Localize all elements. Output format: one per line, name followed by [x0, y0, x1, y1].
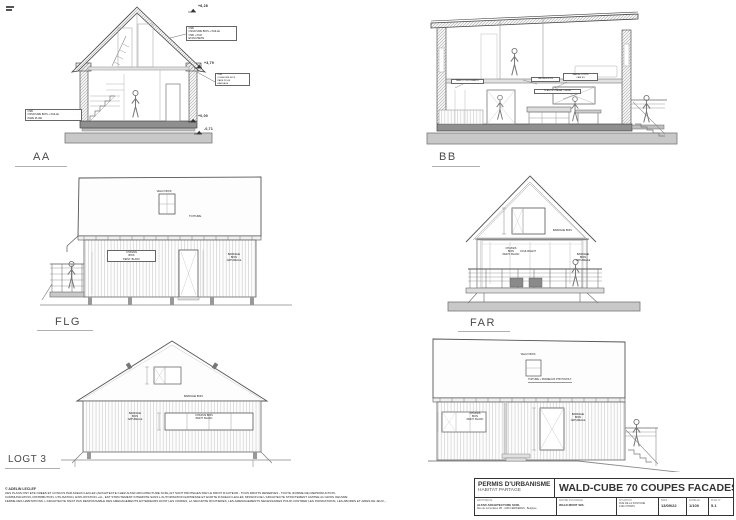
gable-window [154, 367, 181, 384]
titleblock-architect-cell: ARCHITECTE ALTAR ARCHITECTURE SCRL Rue d… [475, 498, 557, 515]
rear-chassis-label: CHASSIS BOIS PEINT. BLANC [461, 412, 489, 421]
cell-header: MAITRE D'OUVRAGE [559, 499, 614, 502]
gable-window [512, 208, 545, 234]
annotation-line: NATURELLE [119, 418, 151, 421]
bb-annotation: GARDE-CORPS CABLES [563, 73, 598, 81]
titleblock-date-cell: DATE 13/09/22 [659, 498, 687, 515]
terrace-deck [466, 288, 604, 293]
annotation-line: BARDAGE [218, 83, 248, 86]
aa-roof-annotation: OSB OSSATURE BOIS + PAILLE OSB + PUR ETA… [186, 26, 237, 41]
permit-cell: PERMIS D'URBANISME HABITAT PARTAGE [475, 479, 555, 497]
bb-annotation: MEUBLE BOIS [531, 77, 560, 82]
floor-slab [80, 121, 197, 128]
cell-value: 13/09/22 [661, 503, 684, 508]
copyright: © ADELIN LECLEF [5, 487, 469, 491]
cell-header: ARCHITECTE [477, 499, 554, 502]
annotation-line: PEINT. BLANC [186, 417, 222, 420]
corner-mark [6, 6, 14, 12]
permit-type: PERMIS D'URBANISME [478, 481, 551, 488]
right-wall [189, 70, 197, 121]
level-eave: +3,79 [204, 61, 214, 65]
cell-value: 1/100 [689, 503, 706, 508]
exterior-stair [628, 450, 652, 462]
drawing-sheet: +6,28 +3,79 +0,00 -0,71 OSB OSSATURE BOI… [0, 0, 736, 520]
elevation-rear-drawing [428, 332, 686, 472]
titleblock-plan-number-cell: PLAN N° 5.1 [709, 498, 733, 515]
cell-value: Rue de la Fontaine 2B - 4190 FERRIERES -… [477, 507, 554, 510]
elevation-logt3-drawing [57, 337, 295, 467]
cell-value: 4190 XHORIS [619, 505, 656, 508]
left-wall [437, 26, 446, 124]
loft-floor [88, 67, 189, 70]
ground-line [428, 461, 686, 472]
annotation-line: PARE PLUIE [28, 117, 80, 120]
cell-header: PLAN N° [711, 499, 731, 502]
logt3-bardage-label: BARDAGE BOIS NATURELLE [119, 412, 151, 421]
caption-flg-underline [37, 330, 93, 331]
ground-slab [65, 133, 212, 143]
cell-header: ECHELLE [689, 499, 706, 502]
annotation-line: NATURELLE [568, 259, 598, 262]
kitchen-counter [527, 107, 571, 112]
level-floor: +0,00 [198, 114, 208, 118]
cell-header: DATE [661, 499, 684, 502]
ground-slab [427, 133, 677, 144]
far-bardage-label: BARDAGE BOIS NATURELLE [568, 253, 598, 262]
elevation-flg-drawing [40, 172, 292, 318]
titleblock-scale-cell: ECHELLE 1/100 [687, 498, 709, 515]
table [575, 110, 601, 113]
titleblock-client-cell: MAITRE D'OUVRAGE WALD MONT SRL [557, 498, 617, 515]
titleblock-situation-cell: SITUATION RUE DE LA FONTAINE 4190 XHORIS [617, 498, 659, 515]
terrace-chair [529, 278, 542, 287]
caption-aa: AA [33, 151, 51, 163]
rear-bardage-label: BARDAGE BOIS NATURELLE [563, 413, 593, 422]
level-ridge: +6,28 [198, 4, 208, 8]
far-coulissant-label: COULISSANT [520, 250, 536, 253]
far-bardage-bois-label: BARDAGE BOIS [553, 229, 572, 232]
annotation-line: ETANCHEITE [189, 37, 235, 40]
caption-aa-underline [15, 166, 67, 167]
project-name: HABITAT PARTAGE [478, 488, 551, 493]
caption-bb-underline [432, 166, 480, 167]
rear-roof-label: TOITURE + PANNEAUX PHOTOVOLT. [528, 378, 572, 383]
elevation-far-drawing [432, 172, 658, 318]
caption-flg: FLG [55, 316, 81, 328]
annotation-line: NATURELLE [563, 419, 593, 422]
annotation-line: PEINT. BLANC [110, 258, 154, 261]
annotation-line: NATURELLE [219, 259, 249, 262]
legal-line: FERME DES HABITATIONS. L'ARCHITECTE N'ES… [5, 500, 469, 504]
siding-wall [84, 240, 256, 297]
person-figure [633, 419, 640, 446]
flg-velux-label: VELUX BOIS [151, 190, 177, 193]
rear-velux-label: VELUX BOIS [514, 353, 542, 356]
legal-block: © ADELIN LECLEF CES PLANS ONT ETE CREES … [5, 487, 469, 504]
bb-annotation: PLAN DE TRAVAIL CHENE [534, 89, 581, 94]
flg-bardage-label: BARDAGE BOIS NATURELLE [219, 253, 249, 262]
sheet-title: WALD-CUBE 70 COUPES FACADES [555, 479, 733, 497]
title-block: PERMIS D'URBANISME HABITAT PARTAGE WALD-… [474, 478, 734, 516]
cell-value: 5.1 [711, 503, 731, 508]
annotation-line: PEINT. BLANC [461, 418, 489, 421]
terrace-chair [510, 278, 523, 287]
flg-roof-label: TOITURE [189, 215, 201, 218]
bb-annotation: PAROI COULISSANTE [451, 79, 484, 84]
logt3-chassis-label: CHASSIS BOIS PEINT. BLANC [186, 414, 222, 420]
roof-section [431, 14, 638, 28]
caption-logt3: LOGT 3 [8, 454, 46, 465]
flg-chassis-label: CHASSIS BOIS PEINT. BLANC [107, 250, 156, 262]
person-figure [132, 90, 139, 117]
floor-slab [437, 124, 632, 131]
caption-logt3-underline [5, 468, 60, 469]
caption-far: FAR [470, 317, 496, 329]
logt3-bardage-bois-label: BARDAGE BOIS [184, 395, 203, 398]
person-figure [68, 261, 75, 288]
aa-wall-left-annotation: OSB OSSATURE BOIS + PAILLE PARE PLUIE [25, 109, 82, 121]
cell-value: WALD MONT SRL [559, 503, 614, 507]
annotation-line: PEINT. BLANC [496, 253, 526, 256]
interior-door [166, 84, 180, 121]
entry-steps [502, 454, 530, 458]
level-ground: -0,71 [204, 127, 213, 131]
caption-bb: BB [439, 151, 457, 163]
aa-wall-right-annotation: OSB OSSATURE BOIS PARE PLUIE BARDAGE [215, 73, 250, 86]
ground-slab [448, 302, 640, 311]
person-figure [511, 48, 518, 75]
terrace-deck [50, 292, 84, 297]
annotation-line: CABLES [566, 77, 596, 80]
